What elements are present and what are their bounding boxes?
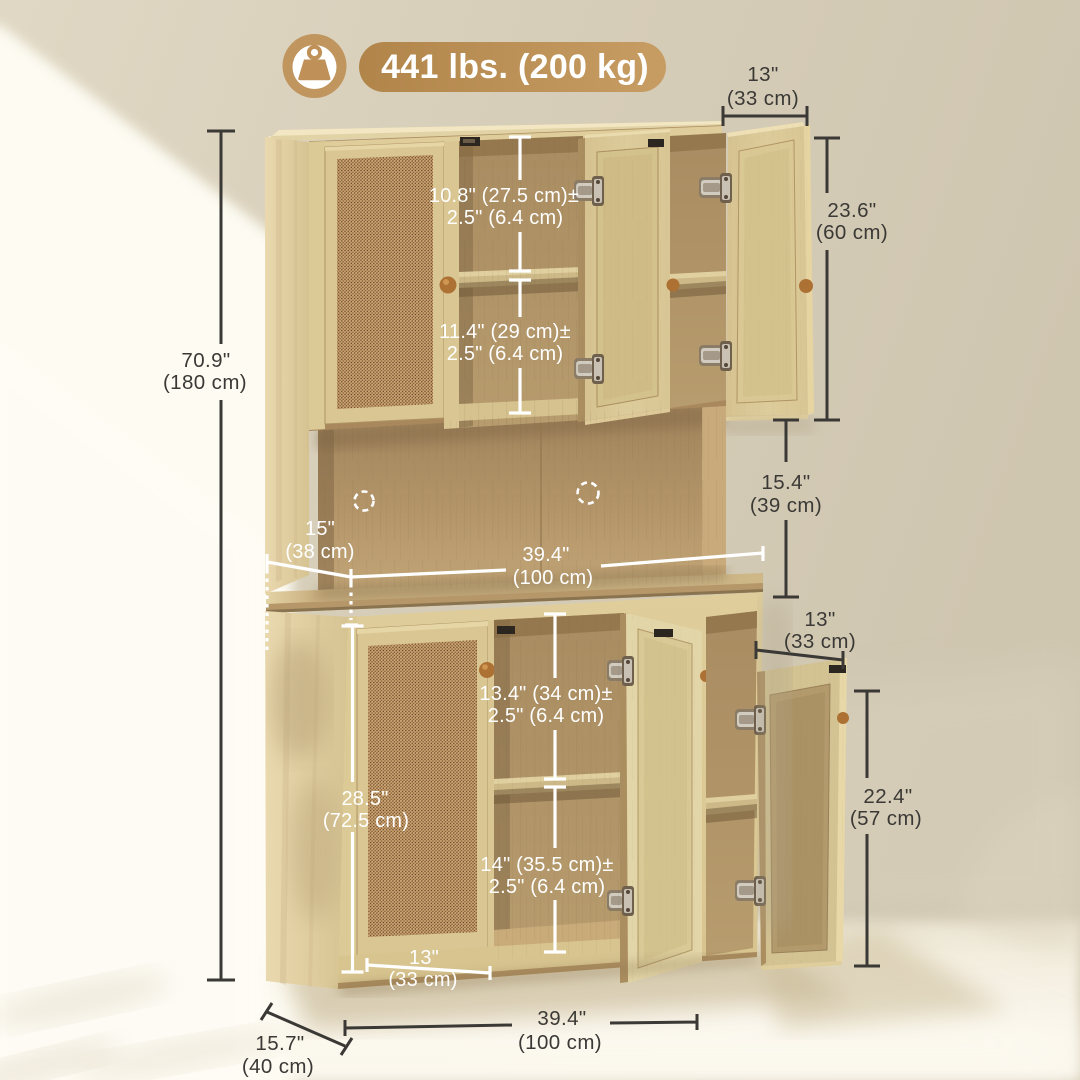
svg-text:2.5" (6.4 cm): 2.5" (6.4 cm) xyxy=(447,343,563,365)
svg-text:(33 cm): (33 cm) xyxy=(388,969,457,991)
svg-text:(38 cm): (38 cm) xyxy=(285,541,354,563)
svg-text:13": 13" xyxy=(804,608,835,631)
svg-text:(40 cm): (40 cm) xyxy=(242,1055,314,1078)
svg-text:(33 cm): (33 cm) xyxy=(784,630,856,653)
svg-text:13": 13" xyxy=(747,63,778,86)
svg-text:(33 cm): (33 cm) xyxy=(727,87,799,110)
svg-text:10.8" (27.5 cm)±: 10.8" (27.5 cm)± xyxy=(429,185,579,207)
svg-text:70.9": 70.9" xyxy=(181,349,230,372)
svg-text:23.6": 23.6" xyxy=(827,199,876,222)
svg-text:(100 cm): (100 cm) xyxy=(513,567,594,589)
svg-text:2.5" (6.4 cm): 2.5" (6.4 cm) xyxy=(447,207,563,229)
svg-text:(60 cm): (60 cm) xyxy=(816,221,888,244)
svg-text:(57 cm): (57 cm) xyxy=(850,807,922,830)
svg-text:15": 15" xyxy=(305,518,335,540)
svg-text:22.4": 22.4" xyxy=(863,785,912,808)
svg-text:441 lbs. (200 kg): 441 lbs. (200 kg) xyxy=(381,48,649,86)
svg-text:11.4" (29 cm)±: 11.4" (29 cm)± xyxy=(439,321,571,343)
svg-text:(100 cm): (100 cm) xyxy=(518,1031,602,1054)
svg-text:13": 13" xyxy=(409,947,439,969)
svg-text:2.5" (6.4 cm): 2.5" (6.4 cm) xyxy=(488,705,604,727)
svg-text:15.7": 15.7" xyxy=(255,1032,304,1055)
svg-text:2.5" (6.4 cm): 2.5" (6.4 cm) xyxy=(489,876,605,898)
svg-text:13.4" (34 cm)±: 13.4" (34 cm)± xyxy=(479,683,612,705)
svg-text:14" (35.5 cm)±: 14" (35.5 cm)± xyxy=(480,854,613,876)
svg-text:(180 cm): (180 cm) xyxy=(163,371,247,394)
svg-text:28.5": 28.5" xyxy=(341,788,388,810)
svg-text:(39 cm): (39 cm) xyxy=(750,494,822,517)
svg-text:39.4": 39.4" xyxy=(537,1007,586,1030)
svg-text:15.4": 15.4" xyxy=(761,471,810,494)
svg-text:39.4": 39.4" xyxy=(522,544,569,566)
svg-text:(72.5 cm): (72.5 cm) xyxy=(323,810,409,832)
